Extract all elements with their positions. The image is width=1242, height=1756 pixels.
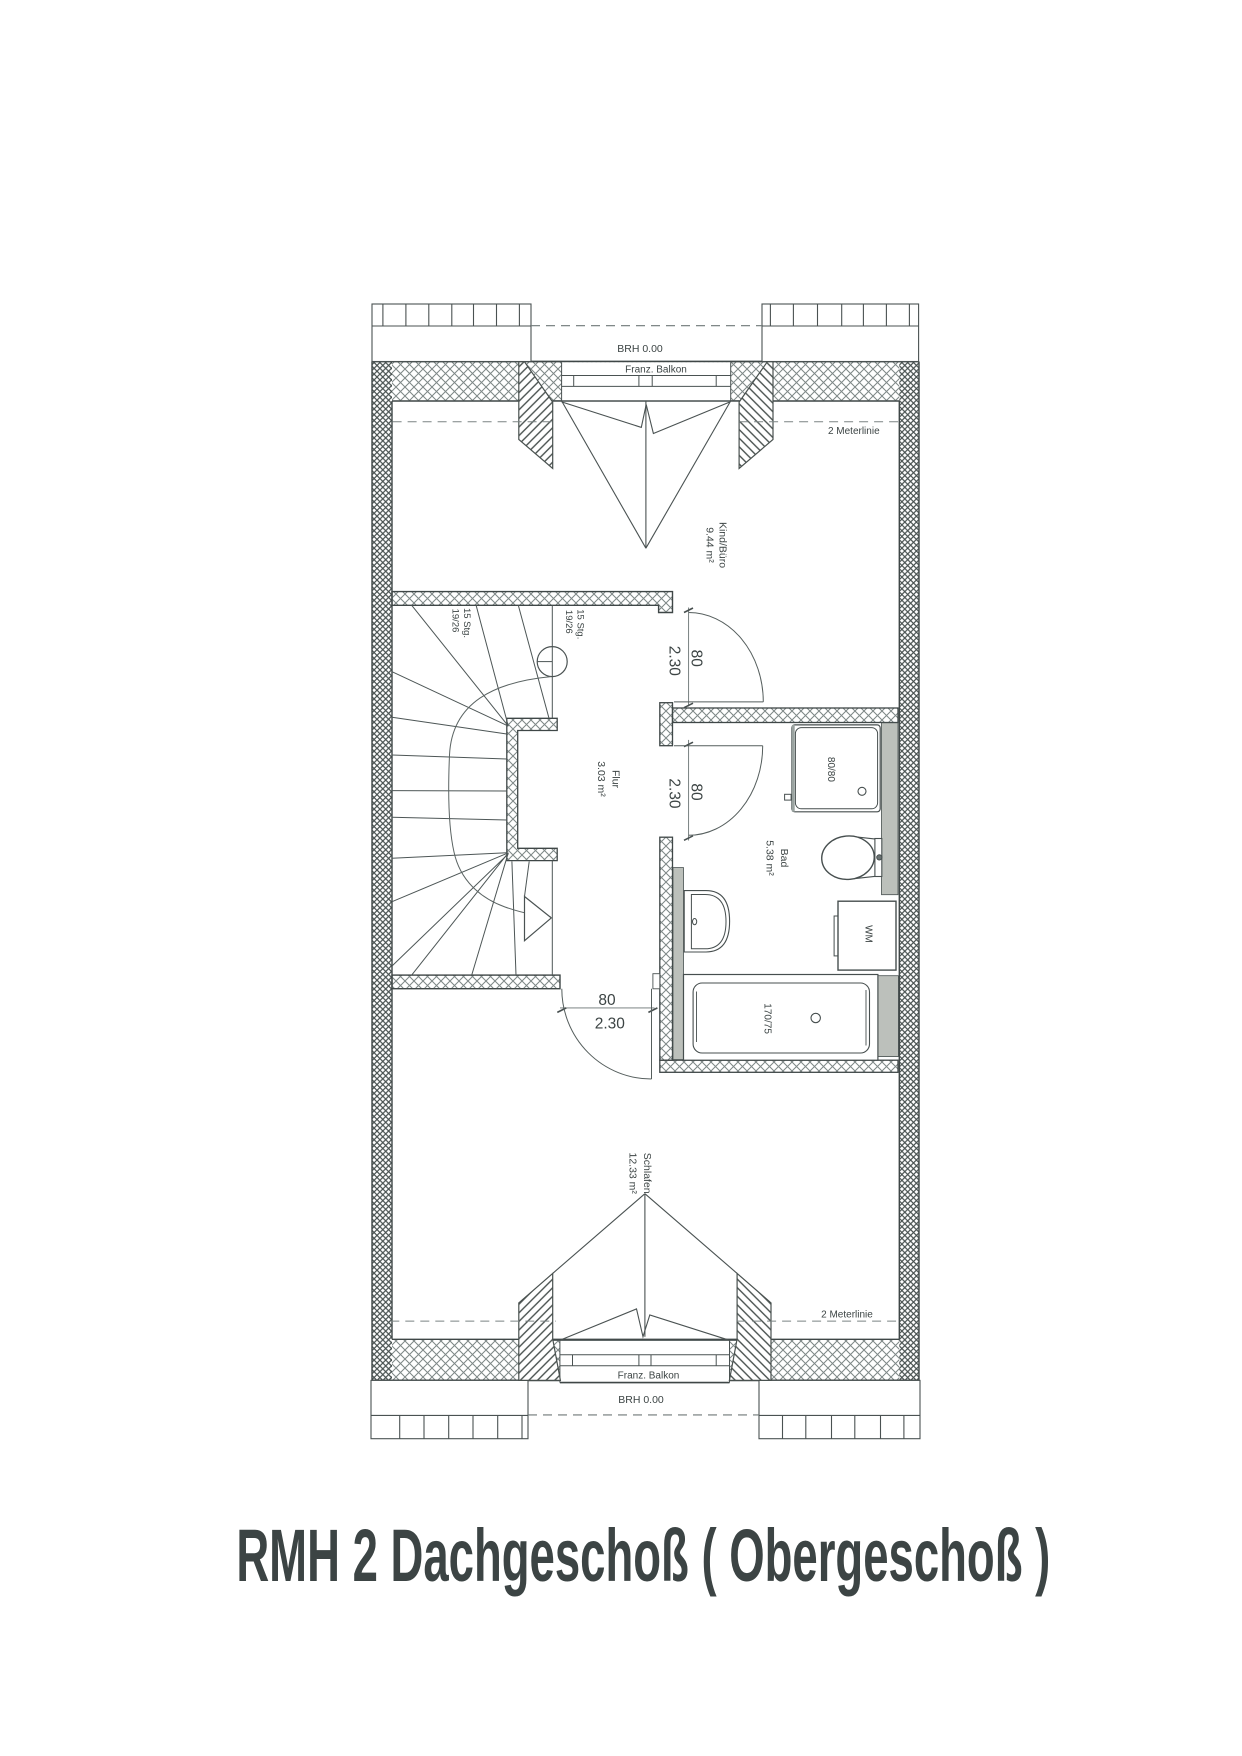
svg-text:WM: WM (863, 925, 874, 943)
svg-text:BRH 0.00: BRH 0.00 (618, 1394, 664, 1406)
svg-text:19/26: 19/26 (450, 609, 461, 633)
svg-text:Franz. Balkon: Franz. Balkon (625, 364, 687, 375)
svg-text:RMH 2 Dachgeschoß ( Obergescho: RMH 2 Dachgeschoß ( Obergeschoß ) (236, 1515, 1050, 1598)
svg-text:170/75: 170/75 (761, 1003, 772, 1034)
svg-text:5.38 m²: 5.38 m² (764, 840, 776, 876)
svg-text:3.03 m²: 3.03 m² (595, 761, 607, 797)
svg-text:2.30: 2.30 (666, 778, 683, 809)
svg-text:9.44 m²: 9.44 m² (704, 527, 716, 563)
svg-text:2.30: 2.30 (595, 1015, 626, 1032)
svg-text:BRH 0.00: BRH 0.00 (617, 343, 663, 355)
svg-text:Bad: Bad (778, 849, 790, 868)
svg-text:80: 80 (688, 783, 705, 801)
svg-text:Flur: Flur (610, 770, 622, 789)
svg-text:2 Meterlinie: 2 Meterlinie (821, 1310, 873, 1321)
svg-text:Kind/Büro: Kind/Büro (717, 522, 729, 568)
svg-text:2 Meterlinie: 2 Meterlinie (828, 426, 880, 437)
svg-text:80: 80 (598, 992, 616, 1009)
svg-text:15 Stg.: 15 Stg. (575, 609, 586, 639)
svg-text:80: 80 (688, 650, 705, 668)
svg-text:2.30: 2.30 (666, 646, 683, 677)
svg-text:15 Stg.: 15 Stg. (461, 608, 472, 638)
svg-text:12.33 m²: 12.33 m² (626, 1152, 638, 1194)
svg-text:Schlafen: Schlafen (641, 1153, 653, 1194)
svg-text:80/80: 80/80 (825, 757, 836, 782)
svg-text:19/26: 19/26 (563, 610, 574, 634)
svg-text:Franz. Balkon: Franz. Balkon (618, 1371, 680, 1382)
